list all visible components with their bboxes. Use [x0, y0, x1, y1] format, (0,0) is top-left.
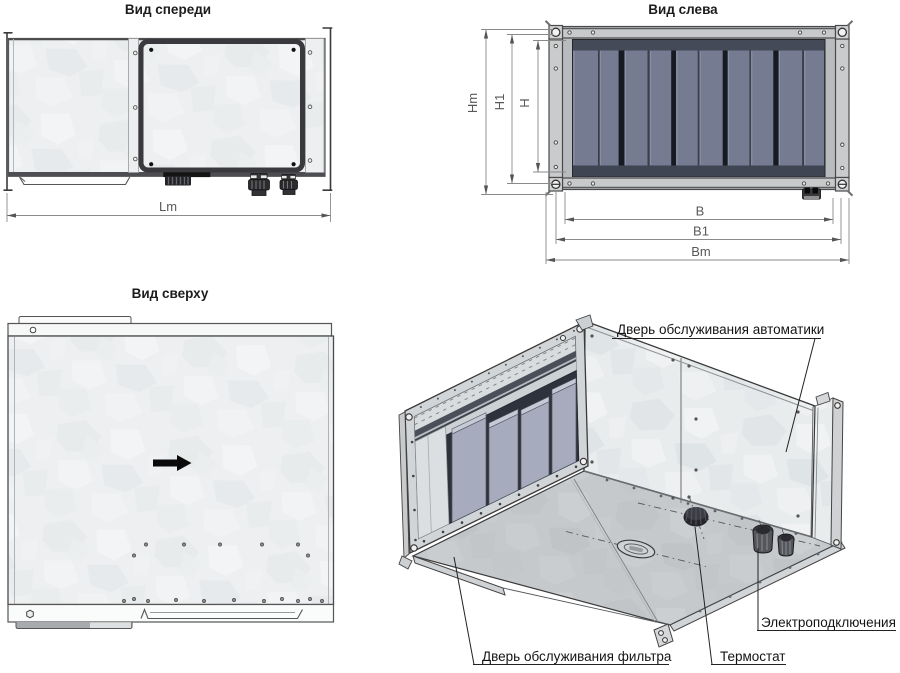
svg-text:Вид спереди: Вид спереди	[125, 2, 211, 17]
svg-text:H1: H1	[492, 94, 507, 111]
svg-text:B: B	[696, 204, 705, 219]
svg-text:Вид слева: Вид слева	[648, 2, 718, 17]
svg-text:Дверь обслуживания автоматики: Дверь обслуживания автоматики	[617, 322, 824, 337]
svg-text:Электроподключения: Электроподключения	[761, 615, 896, 630]
svg-text:Lm: Lm	[159, 199, 177, 214]
svg-text:H: H	[517, 98, 532, 107]
svg-text:B1: B1	[693, 224, 709, 239]
svg-text:Hm: Hm	[465, 93, 480, 113]
svg-text:Термостат: Термостат	[720, 649, 785, 664]
svg-text:Дверь обслуживания фильтра: Дверь обслуживания фильтра	[482, 649, 672, 664]
svg-text:Bm: Bm	[691, 244, 711, 259]
svg-text:Вид сверху: Вид сверху	[132, 286, 209, 301]
